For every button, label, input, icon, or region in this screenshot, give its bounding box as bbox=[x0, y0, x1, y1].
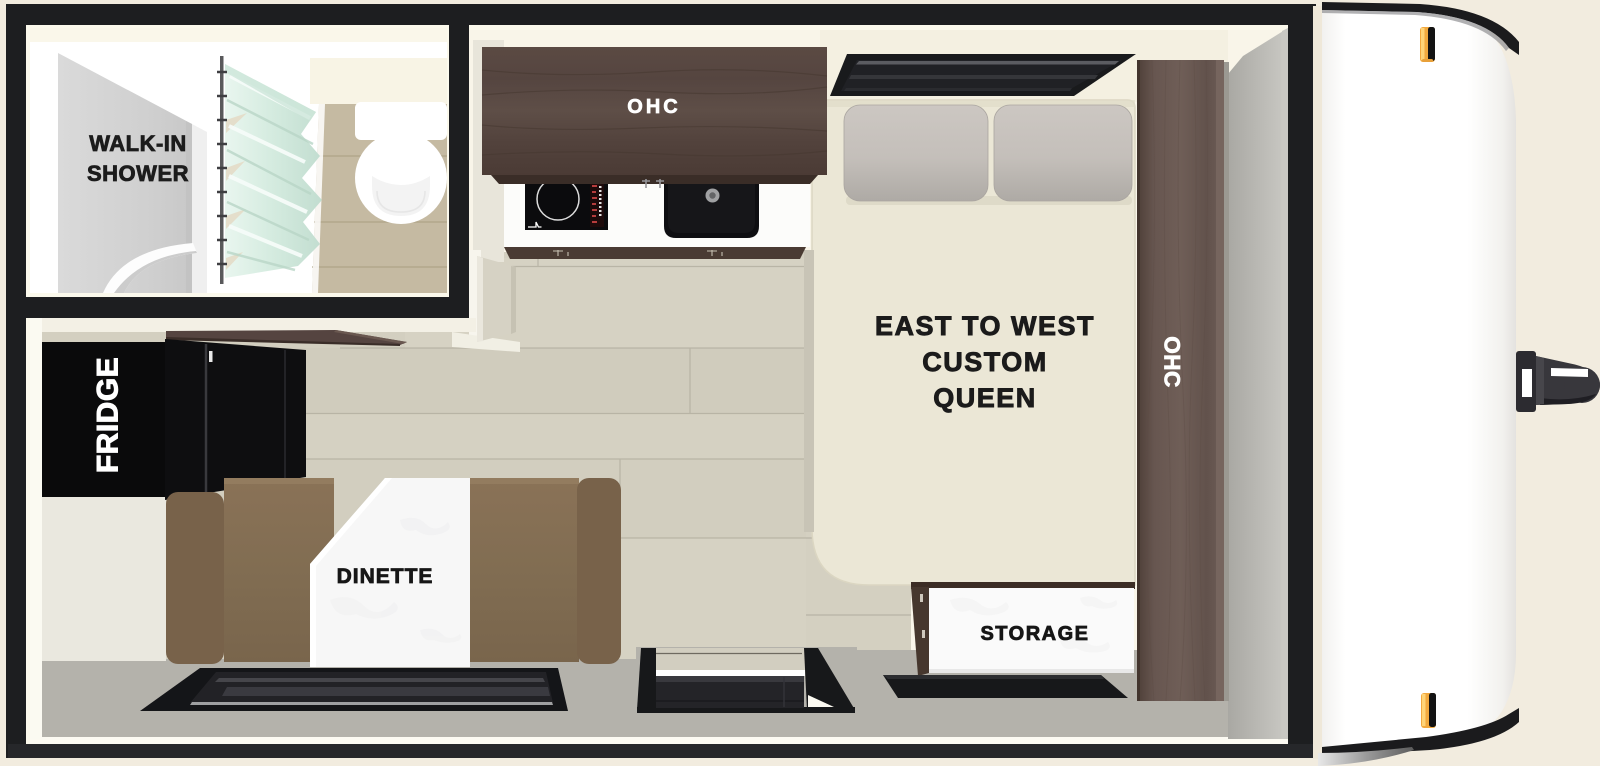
svg-text:QUEEN: QUEEN bbox=[933, 383, 1037, 413]
svg-text:SHOWER: SHOWER bbox=[87, 161, 189, 186]
svg-text:OHC: OHC bbox=[627, 96, 680, 118]
svg-text:STORAGE: STORAGE bbox=[980, 623, 1089, 645]
svg-text:WALK-IN: WALK-IN bbox=[89, 131, 187, 156]
svg-text:CUSTOM: CUSTOM bbox=[922, 347, 1048, 377]
svg-text:DINETTE: DINETTE bbox=[337, 565, 434, 588]
svg-text:OHC: OHC bbox=[1160, 336, 1185, 388]
svg-text:EAST TO WEST: EAST TO WEST bbox=[875, 311, 1095, 341]
svg-text:FRIDGE: FRIDGE bbox=[92, 357, 125, 473]
